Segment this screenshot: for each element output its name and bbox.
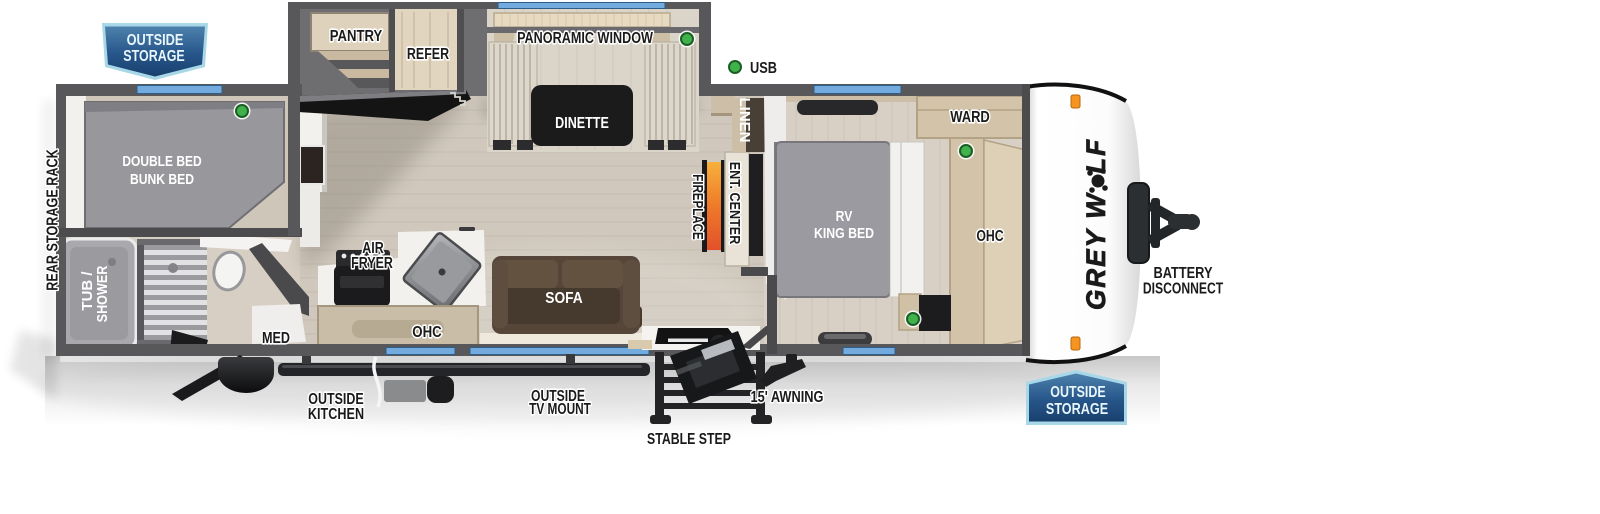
- svg-text:LINEN: LINEN: [736, 98, 753, 143]
- svg-text:BUNK BED: BUNK BED: [130, 171, 194, 187]
- svg-text:15' AWNING: 15' AWNING: [751, 389, 824, 407]
- svg-text:PANTRY: PANTRY: [330, 28, 383, 45]
- svg-text:USB: USB: [750, 60, 777, 78]
- svg-text:KING BED: KING BED: [814, 225, 874, 241]
- svg-text:STABLE STEP: STABLE STEP: [647, 431, 731, 449]
- svg-text:OUTSIDE: OUTSIDE: [1050, 384, 1105, 402]
- svg-text:REAR STORAGE RACK: REAR STORAGE RACK: [44, 149, 62, 291]
- svg-text:DINETTE: DINETTE: [555, 115, 609, 133]
- svg-text:OHC: OHC: [976, 228, 1003, 246]
- svg-text:MED: MED: [262, 330, 290, 348]
- svg-text:KITCHEN: KITCHEN: [308, 406, 364, 424]
- svg-text:TV MOUNT: TV MOUNT: [529, 399, 591, 417]
- svg-text:WARD: WARD: [950, 109, 990, 127]
- svg-text:FIREPLACE: FIREPLACE: [689, 174, 706, 239]
- svg-text:GREY W LF: GREY W LF: [1081, 138, 1111, 310]
- svg-text:SHOWER: SHOWER: [93, 266, 110, 323]
- svg-text:ENT. CENTER: ENT. CENTER: [727, 162, 744, 245]
- svg-text:DOUBLE BED: DOUBLE BED: [122, 153, 201, 170]
- svg-text:REFER: REFER: [407, 46, 450, 64]
- svg-text:OHC: OHC: [412, 324, 442, 341]
- svg-text:PANORAMIC WINDOW: PANORAMIC WINDOW: [517, 30, 653, 48]
- svg-text:STORAGE: STORAGE: [123, 48, 184, 66]
- svg-text:DISCONNECT: DISCONNECT: [1143, 280, 1224, 298]
- svg-text:SOFA: SOFA: [545, 289, 583, 307]
- svg-text:STORAGE: STORAGE: [1046, 401, 1109, 419]
- svg-text:RV: RV: [836, 208, 853, 224]
- svg-text:FRYER: FRYER: [351, 255, 393, 273]
